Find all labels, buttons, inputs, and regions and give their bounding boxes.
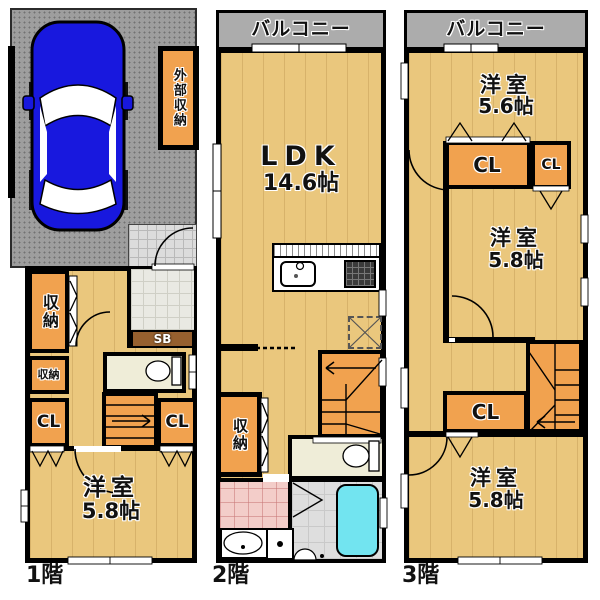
kitchen-sink [280,261,316,287]
closet-right-label: CL [157,398,197,447]
bedroom-3f-mid-label: 洋室 5.8帖 [447,213,585,285]
vanity-sink [220,528,268,559]
storage-small-label: 収納 [28,358,69,392]
kitchen-stove [344,260,376,288]
stairs-2f [318,350,384,438]
storage-2f-label: 収納 [216,394,262,475]
bedroom-3f-top-name: 洋室 [478,74,533,96]
refrigerator-space [348,316,382,349]
garage-left-wall [8,46,15,198]
closet-left-label: CL [28,398,69,447]
ldk-label: LDK 14.6帖 [236,128,366,210]
stairs-3f [526,340,583,433]
bedroom-3f-mid-size: 5.8帖 [488,250,543,271]
ldk-name: LDK [260,143,342,171]
closet-main-label: CL [443,141,531,189]
bedroom-3f-top-size: 5.6帖 [478,96,533,117]
washing-machine [266,528,294,560]
toilet-room-1f [103,352,186,393]
closet-sub-label: CL [531,141,571,189]
balcony-3f-label: バルコニー [404,12,588,48]
entrance-porch [128,224,197,268]
bedroom-3f-bottom-label: 洋室 5.8帖 [404,453,588,525]
bedroom-3f-bottom-name: 洋室 [468,467,523,489]
bedroom-3f-top-label: 洋室 5.6帖 [424,58,588,133]
floor-plan-image: 外部収納 収納 収納 SB CL CL 洋室 5.8帖 1階 バルコニー LDK… [0,0,600,600]
balcony-2f-label: バルコニー [216,12,386,48]
bedroom-1f-size: 5.8帖 [82,500,140,522]
ldk-size: 14.6帖 [260,172,342,195]
floor1-label: 1階 [26,562,106,590]
bedroom-3f-bottom-size: 5.8帖 [468,490,523,511]
floor2-label: 2階 [212,562,292,590]
toilet-room-2f [288,435,386,480]
ldk-lower-wall [216,344,258,351]
stairs-1f [102,392,158,449]
floor3-label: 3階 [402,562,482,590]
entrance-hall [131,269,194,330]
bathtub [336,484,379,557]
bedroom-1f-label: 洋室 5.8帖 [25,468,197,530]
bedroom-3f-mid-name: 洋室 [488,227,543,249]
storage-tall-label: 収納 [28,272,69,351]
shoe-box-label: SB [131,330,194,348]
closet-hall-label: CL [443,391,528,433]
bedroom-1f-name: 洋室 [82,476,140,500]
exterior-storage-label: 外部収納 [158,50,198,146]
mid-wall-3f [443,337,535,343]
